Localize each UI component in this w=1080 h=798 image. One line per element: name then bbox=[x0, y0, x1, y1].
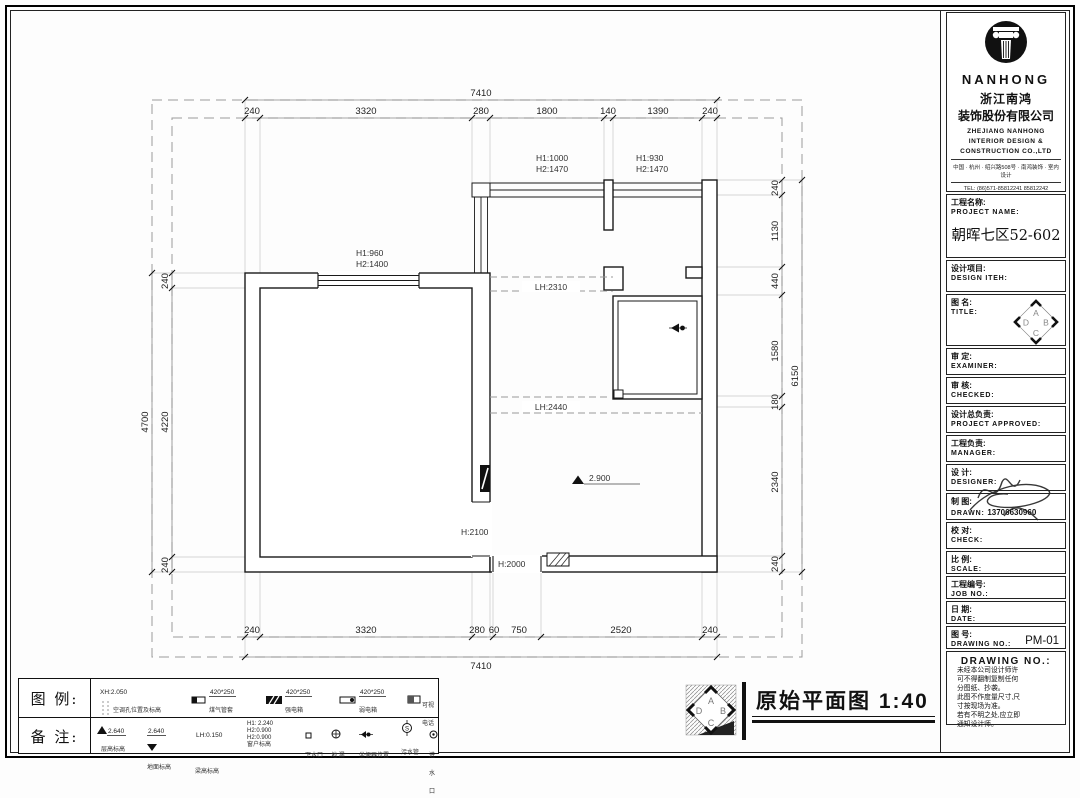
dim-label: 1580 bbox=[770, 340, 781, 361]
dim-label: 1130 bbox=[770, 221, 781, 241]
note-item-beam-elev: LH:0.150 梁高标高 bbox=[195, 724, 224, 758]
svg-text:D: D bbox=[1023, 318, 1029, 328]
electric-box-symbol bbox=[480, 465, 490, 492]
window-height-label: H1:960 bbox=[356, 248, 384, 258]
dim-label: 750 bbox=[511, 625, 527, 636]
legend-item-gas: 420*250煤气管套 bbox=[191, 681, 236, 715]
note-item-water-inlet: 进水口 bbox=[429, 726, 438, 760]
dim-label: 1390 bbox=[647, 106, 668, 117]
note-item-ground-elev: 2.640 地面标高 bbox=[147, 720, 171, 754]
field-title: 图 名: TITLE: A B C D bbox=[946, 294, 1066, 346]
svg-text:B: B bbox=[1043, 318, 1049, 328]
beam-height-label: LH:2310 bbox=[535, 282, 567, 292]
dim-label: 140 bbox=[600, 106, 616, 117]
dim-label: 4700 bbox=[140, 411, 151, 432]
dim-label: 440 bbox=[770, 273, 781, 289]
dim-label: 3320 bbox=[355, 625, 376, 636]
dim-label: 3320 bbox=[355, 106, 376, 117]
floor-drain-icon bbox=[331, 729, 341, 739]
svg-text:S: S bbox=[405, 727, 409, 733]
field-project-approved: 设计总负责: PROJECT APPROVED: bbox=[946, 406, 1066, 433]
floor-plan: 7410 240 3320 280 1800 140 1390 240 240 … bbox=[0, 0, 940, 763]
svg-text:C: C bbox=[1033, 328, 1039, 338]
svg-text:A: A bbox=[1033, 308, 1039, 318]
footer-diamond-logo: A B C D bbox=[682, 679, 742, 743]
field-check: 校 对: CHECK: bbox=[946, 522, 1066, 549]
dim-label: 2340 bbox=[770, 471, 781, 492]
drawing-no-value: PM-01 bbox=[1025, 635, 1059, 647]
opening-height-label: H:2000 bbox=[498, 559, 526, 569]
dim-label: 7410 bbox=[470, 88, 491, 99]
legend-row: 备 注: 2.640 层高标高 2.640 地面标高 LH:0.150 梁高标高… bbox=[19, 717, 438, 754]
field-drawing-no: 图 号: DRAWING NO.: PM-01 bbox=[946, 626, 1066, 649]
field-checked: 审 核: CHECKED: bbox=[946, 377, 1066, 404]
note-item-drain-outlet: 下水口 bbox=[305, 726, 323, 760]
dim-label: 2520 bbox=[610, 625, 631, 636]
windows bbox=[318, 183, 702, 286]
toilet-position-icon bbox=[359, 730, 373, 739]
dim-label: 280 bbox=[469, 625, 485, 636]
company-address: 中国 · 杭州 · 绍兴路508号 · 南鸿装饰 · 室内设计 bbox=[951, 160, 1061, 183]
company-name-en: ZHEJIANG NANHONG INTERIOR DESIGN & CONST… bbox=[951, 127, 1061, 160]
dim-label: 240 bbox=[160, 273, 171, 289]
dim-label: 240 bbox=[702, 106, 718, 117]
dim-label: 240 bbox=[770, 180, 781, 196]
dim-label: 240 bbox=[244, 106, 260, 117]
field-designer: 设 计: DESIGNER: bbox=[946, 464, 1066, 491]
title-underline bbox=[752, 716, 935, 717]
drawn-phone-value: 13706630960 bbox=[987, 508, 1036, 517]
brand-name: NANHONG bbox=[951, 72, 1061, 87]
legend-item-weak-box: 420*250弱电箱 bbox=[339, 681, 386, 715]
project-name-value: 朝晖七区52-602 bbox=[951, 224, 1061, 245]
field-manager: 工程负责: MANAGER: bbox=[946, 435, 1066, 462]
field-job-no: 工程编号: JOB NO.: bbox=[946, 576, 1066, 599]
hatched-box-symbol bbox=[547, 553, 569, 566]
videophone-icon bbox=[407, 695, 421, 704]
water-inlet-icon bbox=[429, 730, 438, 739]
field-date: 日 期: DATE: bbox=[946, 601, 1066, 624]
svg-text:B: B bbox=[720, 706, 726, 716]
svg-text:D: D bbox=[696, 706, 703, 716]
drawing-sheet: { "logo": { "brand": "NANHONG", "company… bbox=[0, 0, 1080, 763]
legend-item-videophone: 可视电话 bbox=[407, 681, 438, 715]
up-triangle-icon bbox=[97, 726, 107, 734]
legend-row: 图 例: XH:2.050 空调孔位置及标高 420*250煤气管套 420*2… bbox=[19, 679, 438, 717]
gas-sleeve-icon bbox=[191, 695, 207, 705]
note-item-window-elev: H1: 2.240H2:0.900H2:0.900窗户标高 bbox=[247, 721, 273, 755]
nanhong-column-logo bbox=[983, 19, 1029, 65]
window-height-label: H2:1400 bbox=[356, 259, 388, 269]
window-height-label: H2:1470 bbox=[536, 164, 568, 174]
svg-text:A: A bbox=[708, 696, 714, 706]
dim-label: 240 bbox=[770, 556, 781, 572]
note-item-toilet: 坐便器位置 bbox=[359, 726, 389, 760]
window-height-label: H1:930 bbox=[636, 153, 664, 163]
dim-label: 4220 bbox=[160, 411, 171, 432]
elevation-label: 2.900 bbox=[589, 473, 611, 483]
legend-item-ac-hole: XH:2.050 空调孔位置及标高 bbox=[99, 681, 161, 715]
down-triangle-icon bbox=[147, 744, 157, 751]
dim-label: 1800 bbox=[536, 106, 557, 117]
note-item-floor-elev: 2.640 层高标高 bbox=[97, 720, 126, 754]
field-drawn: 制 图: DRAWN: 13706630960 bbox=[946, 493, 1066, 520]
titleblock: NANHONG 浙江南鸿 装饰股份有限公司 ZHEJIANG NANHONG I… bbox=[946, 12, 1066, 727]
power-box-icon bbox=[265, 695, 283, 705]
field-design-item: 设计项目: DESIGN ITEH: bbox=[946, 260, 1066, 292]
dim-label: 240 bbox=[702, 625, 718, 636]
elevation-marker: 2.900 bbox=[572, 473, 640, 484]
notes-header: DRAWING NO.: bbox=[951, 656, 1061, 667]
window-height-label: H2:1470 bbox=[636, 164, 668, 174]
drawing-title: 原始平面图 1:40 bbox=[756, 685, 929, 715]
company-name-cn: 装饰股份有限公司 bbox=[951, 107, 1061, 124]
legend-item-power-box: 420*250强电箱 bbox=[265, 681, 312, 715]
drawing-title-block: A B C D 原始平面图 1:40 bbox=[682, 679, 938, 749]
legend-table: 图 例: XH:2.050 空调孔位置及标高 420*250煤气管套 420*2… bbox=[18, 678, 439, 754]
company-name-cn: 浙江南鸿 bbox=[951, 90, 1061, 107]
weak-box-icon bbox=[339, 695, 357, 705]
field-examiner: 审 定: EXAMINER: bbox=[946, 348, 1066, 375]
window-height-label: H1:1000 bbox=[536, 153, 568, 163]
svg-text:C: C bbox=[708, 718, 715, 728]
title-diamond-logo: A B C D bbox=[1011, 298, 1061, 346]
dim-label: 240 bbox=[160, 557, 171, 573]
company-logo-box: NANHONG 浙江南鸿 装饰股份有限公司 ZHEJIANG NANHONG I… bbox=[946, 12, 1066, 192]
titleblock-divider bbox=[940, 11, 941, 752]
field-scale: 比 例: SCALE: bbox=[946, 551, 1066, 574]
field-project-name: 工程名称: PROJECT NAME: 朝晖七区52-602 bbox=[946, 194, 1066, 258]
dim-label: 280 bbox=[473, 106, 489, 117]
title-underline-thick bbox=[752, 720, 935, 723]
sewage-pipe-icon: S bbox=[401, 720, 413, 736]
ac-hole-icon bbox=[99, 701, 113, 715]
note-item-floor-drain: 地 漏 bbox=[331, 726, 345, 760]
dim-label: 60 bbox=[489, 625, 500, 636]
title-bar-divider bbox=[742, 682, 746, 740]
dim-label: 7410 bbox=[470, 661, 491, 672]
drawing-notes: DRAWING NO.: 未经本公司设计师许 可不得翻制复制任何 分图纸、抄袭。… bbox=[946, 651, 1066, 725]
window-pier bbox=[604, 180, 613, 230]
dim-label: 180 bbox=[770, 394, 781, 410]
beam-height-label: LH:2440 bbox=[535, 402, 567, 412]
legend-header: 备 注: bbox=[19, 718, 91, 754]
dim-label: 6150 bbox=[790, 365, 801, 386]
note-item-sewage: S 污水管 bbox=[401, 720, 419, 754]
dim-label: 240 bbox=[244, 625, 260, 636]
legend-header: 图 例: bbox=[19, 679, 91, 717]
drain-outlet-icon bbox=[305, 732, 312, 739]
door-height-label: H:2100 bbox=[461, 527, 489, 537]
